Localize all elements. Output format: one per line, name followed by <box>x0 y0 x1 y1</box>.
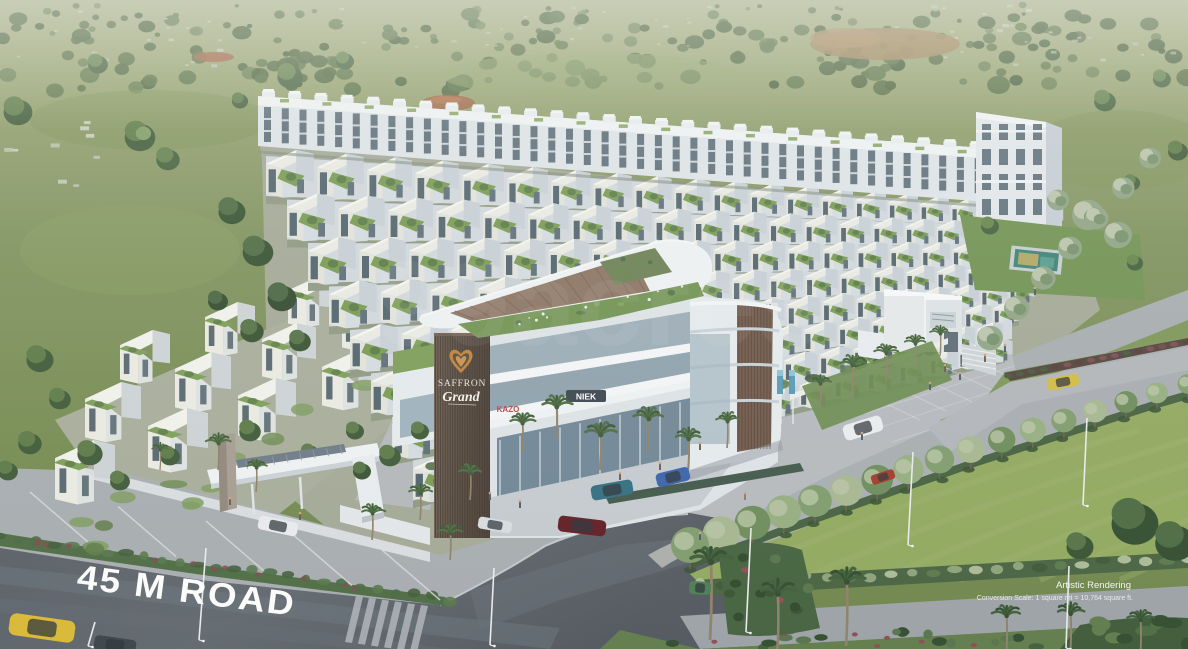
svg-text:99acres: 99acres <box>376 237 823 371</box>
